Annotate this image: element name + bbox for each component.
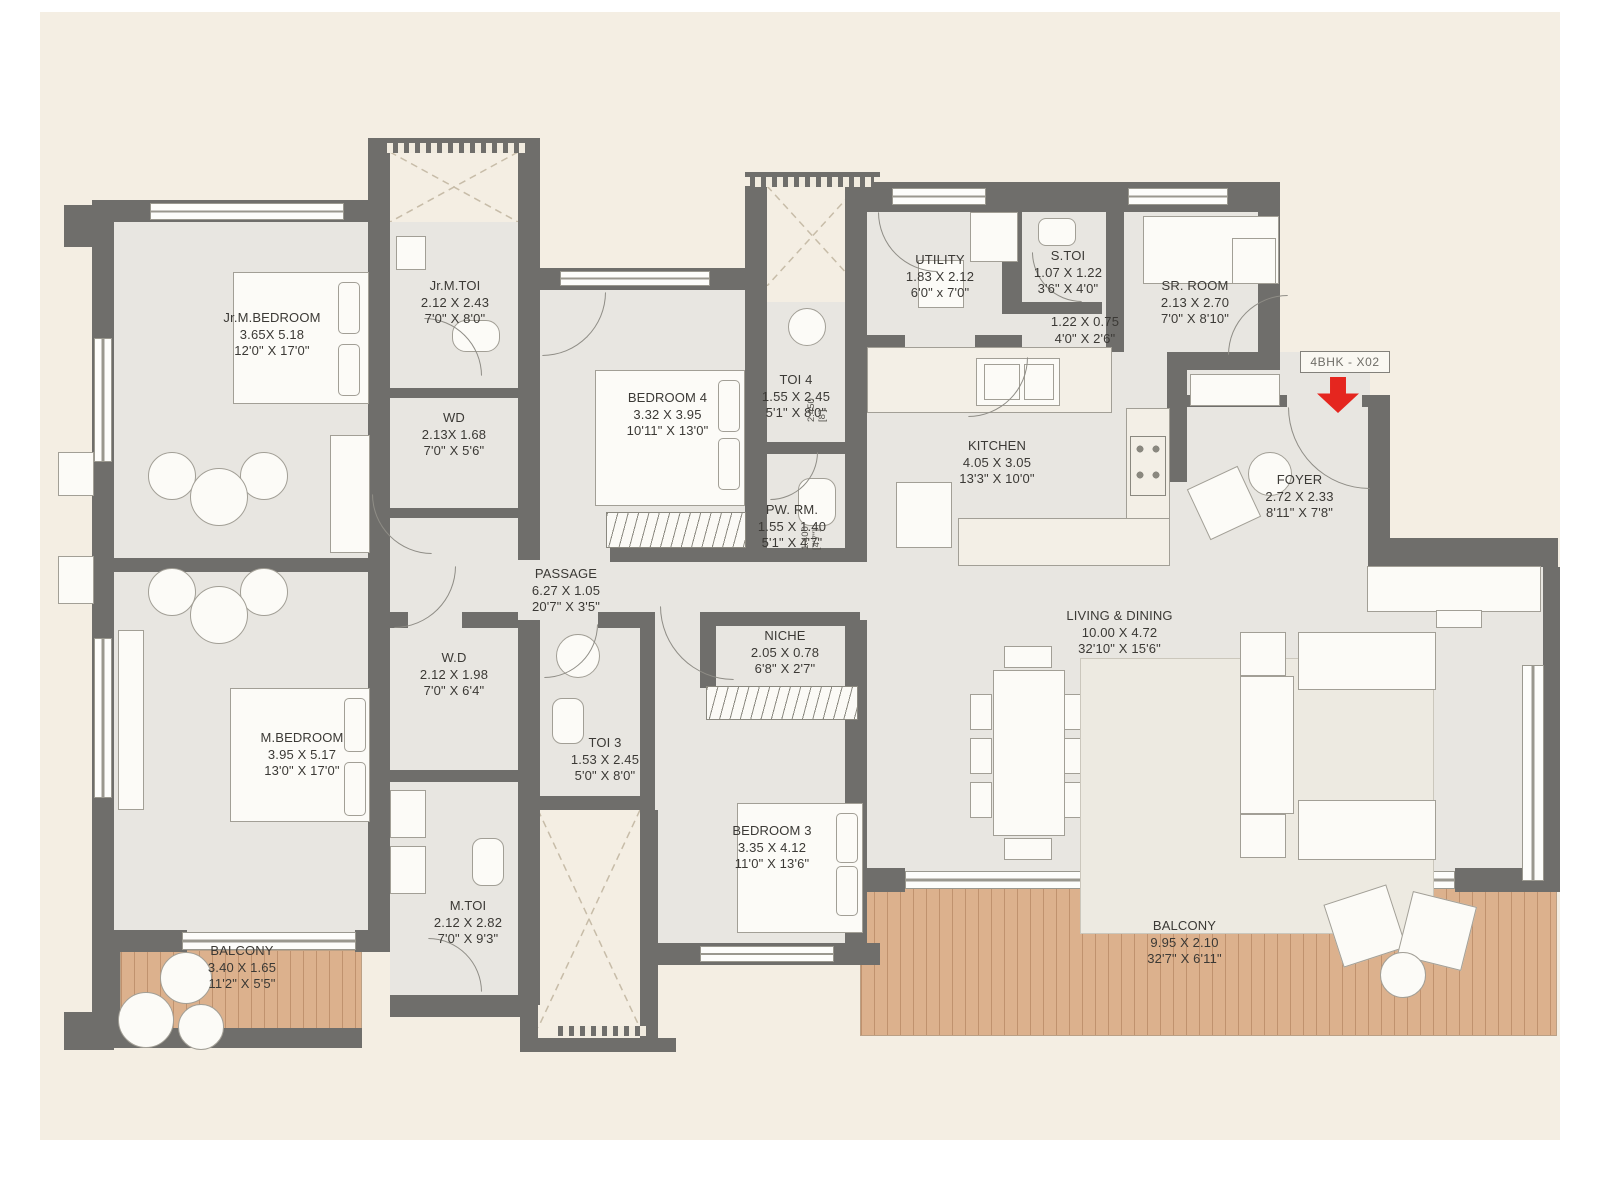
vent-grille xyxy=(558,1026,650,1036)
room-name: W.D xyxy=(392,650,516,667)
room-label-balcony-left: BALCONY 3.40 X 1.65 11'2" X 5'5" xyxy=(172,943,312,993)
wall xyxy=(1022,302,1102,314)
shaft-hatch xyxy=(390,152,518,222)
room-label-utility: UTILITY 1.83 X 2.12 6'0" x 7'0" xyxy=(878,252,1002,302)
pillow xyxy=(836,866,858,916)
room-label-toi3: TOI 3 1.53 X 2.45 5'0" X 8'0" xyxy=(546,735,664,785)
side-table xyxy=(1240,632,1286,676)
drainboard xyxy=(1024,364,1054,400)
ledge xyxy=(58,452,94,496)
armchair xyxy=(148,452,196,500)
wall xyxy=(64,1012,94,1050)
wardrobe xyxy=(706,686,858,720)
wall xyxy=(610,548,745,562)
room-label-pw-rm: PW. RM. 1.55 X 1.40 5'1" X 4'7" xyxy=(736,502,848,552)
room-label-m-bedroom: M.BEDROOM 3.95 X 5.17 13'0" X 17'0" xyxy=(210,730,394,780)
stove xyxy=(1130,436,1166,496)
dim-value: [8'] xyxy=(817,352,828,422)
ledge xyxy=(58,556,94,604)
shaft-hatch xyxy=(538,810,640,1028)
room-dim-m: 2.12 X 2.43 xyxy=(394,295,516,312)
room-name: FOYER xyxy=(1232,472,1367,489)
room-dim-m: 2.12 X 2.82 xyxy=(403,915,533,932)
room-dim-m: 1.83 X 2.12 xyxy=(878,269,1002,286)
wall xyxy=(390,995,520,1017)
room-name: BALCONY xyxy=(172,943,312,960)
wash-basin xyxy=(396,236,426,270)
toilet xyxy=(472,838,504,886)
room-name: KITCHEN xyxy=(932,438,1062,455)
fridge xyxy=(896,482,952,548)
dim-annotation-pw: 1.400 [4'7"] xyxy=(800,486,822,550)
room-label-passage: PASSAGE 6.27 X 1.05 20'7" X 3'5" xyxy=(502,566,630,616)
side-table xyxy=(1240,814,1286,858)
toilet xyxy=(1038,218,1076,246)
unit-label: 4BHK - X02 xyxy=(1300,351,1390,373)
cabinet xyxy=(1190,374,1280,406)
room-name: BALCONY xyxy=(1112,918,1257,935)
room-label-wd-top: WD 2.13X 1.68 7'0" X 5'6" xyxy=(392,410,516,460)
console xyxy=(1367,566,1541,612)
room-dim-m: 3.95 X 5.17 xyxy=(210,747,394,764)
wash-basin xyxy=(390,790,426,838)
room-dim-ft: 10'11" X 13'0" xyxy=(575,423,760,440)
room-label-niche: NICHE 2.05 X 0.78 6'8" X 2'7" xyxy=(723,628,847,678)
room-label-jr-m-bedroom: Jr.M.BEDROOM 3.65X 5.18 12'0" X 17'0" xyxy=(180,310,364,360)
room-dim-m: 3.32 X 3.95 xyxy=(575,407,760,424)
wall xyxy=(64,205,94,247)
room-dim-m: 2.13 X 2.70 xyxy=(1130,295,1260,312)
wash-basin xyxy=(390,846,426,894)
room-label-kitchen: KITCHEN 4.05 X 3.05 13'3" X 10'0" xyxy=(932,438,1062,488)
round-table xyxy=(190,468,248,526)
window xyxy=(1522,665,1544,881)
window xyxy=(560,271,710,286)
wall xyxy=(114,558,368,572)
chair xyxy=(970,738,992,774)
room-dim-m: 2.12 X 1.98 xyxy=(392,667,516,684)
wall xyxy=(845,172,867,560)
wall xyxy=(540,796,655,810)
dim-value: 1.400 xyxy=(800,486,811,550)
wall xyxy=(1543,567,1560,892)
wall xyxy=(355,930,390,952)
room-dim-m: 3.65X 5.18 xyxy=(180,327,364,344)
room-label-toi4: TOI 4 1.55 X 2.45 5'1" X 8'0" xyxy=(742,372,850,422)
kitchen-counter xyxy=(958,518,1170,566)
room-label-bedroom3: BEDROOM 3 3.35 X 4.12 11'0" X 13'6" xyxy=(688,823,856,873)
room-dim-ft: 5'1" X 8'0" xyxy=(742,405,850,422)
window xyxy=(892,188,986,205)
room-dim-ft: 7'0" X 9'3" xyxy=(403,931,533,948)
wall xyxy=(520,1038,676,1052)
vent-grille xyxy=(750,177,874,187)
room-dim-m: 10.00 X 4.72 xyxy=(1037,625,1202,642)
chair xyxy=(970,782,992,818)
dim-value: [4'7"] xyxy=(811,486,822,550)
wash-basin xyxy=(788,308,826,346)
wardrobe xyxy=(606,512,746,548)
wall xyxy=(1167,352,1187,482)
room-name: WD xyxy=(392,410,516,427)
room-dim-ft: 20'7" X 3'5" xyxy=(502,599,630,616)
wall xyxy=(518,152,540,560)
window xyxy=(94,638,112,798)
wardrobe xyxy=(118,630,144,810)
window xyxy=(94,338,112,462)
wall xyxy=(92,205,114,1050)
room-dim-ft: 7'0" X 6'4" xyxy=(392,683,516,700)
room-name: M.TOI xyxy=(403,898,533,915)
room-label-m-toi: M.TOI 2.12 X 2.82 7'0" X 9'3" xyxy=(403,898,533,948)
wall xyxy=(1388,538,1558,567)
room-name: TOI 4 xyxy=(742,372,850,389)
room-dim-ft: 3'6" X 4'0" xyxy=(1012,281,1124,298)
chair xyxy=(970,694,992,730)
room-dim-m: 2.05 X 0.78 xyxy=(723,645,847,662)
chair xyxy=(1004,838,1052,860)
room-dim-ft: 8'11" X 7'8" xyxy=(1232,505,1367,522)
wall xyxy=(1368,407,1390,567)
room-dim-ft: 7'0" X 8'0" xyxy=(394,311,516,328)
wall xyxy=(745,186,767,290)
unit-label-text: 4BHK - X02 xyxy=(1310,355,1379,369)
room-label-s-toi: S.TOI 1.07 X 1.22 3'6" X 4'0" xyxy=(1012,248,1124,298)
room-dim-ft: 5'0" X 8'0" xyxy=(546,768,664,785)
room-label-jr-m-toi: Jr.M.TOI 2.12 X 2.43 7'0" X 8'0" xyxy=(394,278,516,328)
room-dim-ft: 4'0" X 2'6" xyxy=(1018,331,1152,348)
dresser xyxy=(330,435,370,553)
room-name: BEDROOM 3 xyxy=(688,823,856,840)
wall xyxy=(390,388,518,398)
wall xyxy=(100,952,120,1032)
room-dim-m: 3.35 X 4.12 xyxy=(688,840,856,857)
wall xyxy=(1362,395,1390,407)
room-dim-m: 9.95 X 2.10 xyxy=(1112,935,1257,952)
outdoor-table xyxy=(178,1004,224,1050)
room-dim-m: 1.07 X 1.22 xyxy=(1012,265,1124,282)
dining-table xyxy=(993,670,1065,836)
room-name: TOI 3 xyxy=(546,735,664,752)
dim-annotation-toi4: 2.450 [8'] xyxy=(806,352,828,422)
wall xyxy=(640,810,658,1038)
room-label-wd-mid: W.D 2.12 X 1.98 7'0" X 6'4" xyxy=(392,650,516,700)
round-table xyxy=(190,586,248,644)
wall xyxy=(1455,868,1560,892)
room-label-lobby: 1.22 X 0.75 4'0" X 2'6" xyxy=(1018,314,1152,347)
room-dim-m: 6.27 X 1.05 xyxy=(502,583,630,600)
room-dim-m: 3.40 X 1.65 xyxy=(172,960,312,977)
room-name: Jr.M.TOI xyxy=(394,278,516,295)
room-dim-ft: 6'0" x 7'0" xyxy=(878,285,1002,302)
window xyxy=(1128,188,1228,205)
room-dim-ft: 6'8" X 2'7" xyxy=(723,661,847,678)
room-name: M.BEDROOM xyxy=(210,730,394,747)
room-dim-m: 1.55 X 2.45 xyxy=(742,389,850,406)
pillow xyxy=(718,438,740,490)
vent-grille xyxy=(382,143,530,153)
room-dim-ft: 32'10" X 15'6" xyxy=(1037,641,1202,658)
window xyxy=(150,203,344,220)
tv xyxy=(1436,610,1482,628)
room-name: SR. ROOM xyxy=(1130,278,1260,295)
room-dim-m: 2.13X 1.68 xyxy=(392,427,516,444)
room-name: BEDROOM 4 xyxy=(575,390,760,407)
room-dim-ft: 13'3" X 10'0" xyxy=(932,471,1062,488)
room-dim-ft: 32'7" X 6'11" xyxy=(1112,951,1257,968)
room-dim-ft: 11'0" X 13'6" xyxy=(688,856,856,873)
room-name: PASSAGE xyxy=(502,566,630,583)
room-name: Jr.M.BEDROOM xyxy=(180,310,364,327)
dim-value: 2.450 xyxy=(806,352,817,422)
floor-plan: Jr.M.BEDROOM 3.65X 5.18 12'0" X 17'0" Jr… xyxy=(0,0,1600,1200)
sofa xyxy=(1240,676,1294,814)
room-dim-m: 1.53 X 2.45 xyxy=(546,752,664,769)
room-dim-m: 1.55 X 1.40 xyxy=(736,519,848,536)
room-label-living-dining: LIVING & DINING 10.00 X 4.72 32'10" X 15… xyxy=(1037,608,1202,658)
room-dim-ft: 13'0" X 17'0" xyxy=(210,763,394,780)
room-dim-ft: 12'0" X 17'0" xyxy=(180,343,364,360)
wall xyxy=(390,770,518,782)
sofa xyxy=(1298,800,1436,860)
room-name: NICHE xyxy=(723,628,847,645)
room-dim-m: 1.22 X 0.75 xyxy=(1018,314,1152,331)
outdoor-table xyxy=(1380,952,1426,998)
room-name: PW. RM. xyxy=(736,502,848,519)
room-dim-m: 4.05 X 3.05 xyxy=(932,455,1062,472)
sofa xyxy=(1298,632,1436,690)
room-dim-m: 2.72 X 2.33 xyxy=(1232,489,1367,506)
armchair xyxy=(148,568,196,616)
room-label-balcony-right: BALCONY 9.95 X 2.10 32'7" X 6'11" xyxy=(1112,918,1257,968)
room-name: S.TOI xyxy=(1012,248,1124,265)
window xyxy=(700,946,834,962)
room-dim-ft: 11'2" X 5'5" xyxy=(172,976,312,993)
room-name: LIVING & DINING xyxy=(1037,608,1202,625)
room-name: UTILITY xyxy=(878,252,1002,269)
outdoor-chair xyxy=(118,992,174,1048)
room-label-foyer: FOYER 2.72 X 2.33 8'11" X 7'8" xyxy=(1232,472,1367,522)
room-dim-ft: 5'1" X 4'7" xyxy=(736,535,848,552)
room-label-bedroom4: BEDROOM 4 3.32 X 3.95 10'11" X 13'0" xyxy=(575,390,760,440)
room-dim-ft: 7'0" X 5'6" xyxy=(392,443,516,460)
